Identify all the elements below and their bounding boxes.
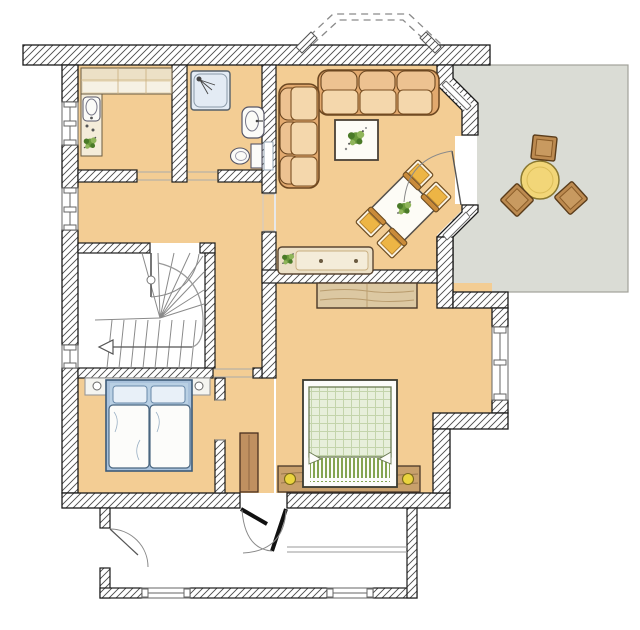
terrace-chair <box>531 135 557 161</box>
pillow-left <box>113 386 147 403</box>
wall-stair-east <box>205 253 215 368</box>
wall-top <box>23 45 490 65</box>
window-left-stairs <box>62 345 78 368</box>
wall-living-west-2 <box>262 232 276 378</box>
pillow-right <box>151 386 185 403</box>
shelf-knob-left <box>93 382 101 390</box>
apartment-door-knob <box>147 276 155 284</box>
bedside-lamp-left <box>285 474 296 485</box>
vestibule-window-left <box>142 588 190 598</box>
wall-stair-north-1 <box>78 243 150 253</box>
wall-kitchen-south <box>78 170 137 182</box>
dormer-dashed-outer <box>301 14 441 44</box>
window-left-hall <box>62 188 78 230</box>
window-left-kitchen <box>62 102 78 145</box>
floor-plan-page <box>0 0 640 630</box>
wall-east-step <box>433 413 508 429</box>
dormer-dashed-inner <box>313 20 429 44</box>
sideboard-with-plant <box>278 247 373 274</box>
bed-master <box>303 380 397 487</box>
bedside-lamp-right <box>403 474 414 485</box>
bed-guest <box>106 380 192 471</box>
kitchen-counter-front <box>83 82 170 92</box>
wall-bedroom-guest-north <box>78 368 213 378</box>
wall-east-1 <box>492 308 508 327</box>
wall-kitchen-bath <box>172 65 187 182</box>
bed-master-blanket <box>309 387 391 457</box>
floor-vestibule <box>100 508 417 598</box>
wall-left-4 <box>62 368 78 493</box>
wall-east-2 <box>492 400 508 413</box>
duvet-right <box>150 405 190 468</box>
shower <box>191 71 230 110</box>
wall-terrace-south <box>453 292 508 308</box>
wall-east-living <box>437 237 453 308</box>
vestibule-window-right <box>327 588 373 598</box>
tall-cupboard <box>240 433 258 492</box>
wall-stair-north-2 <box>200 243 215 253</box>
wall-left-1 <box>62 65 78 102</box>
floor-plan-drawing <box>0 0 640 630</box>
washbasin <box>242 107 264 138</box>
coffee-table-with-plant <box>335 120 378 160</box>
wardrobe <box>317 283 417 308</box>
wall-left-3 <box>62 230 78 345</box>
window-east-bedroom <box>492 327 508 400</box>
shelf-knob-right <box>195 382 203 390</box>
wall-left-2 <box>62 145 78 188</box>
wall-stub <box>253 368 262 378</box>
wall-bedrooms-divider-2 <box>215 440 225 493</box>
terrace <box>453 65 628 292</box>
wall-bottom-right <box>287 493 450 508</box>
wall-bedrooms-divider-1 <box>215 378 225 400</box>
wall-bottom-left <box>62 493 240 508</box>
bed-master-fringe <box>310 458 390 482</box>
kitchen-sink <box>83 97 100 121</box>
wall-east-3 <box>433 429 450 493</box>
radiator <box>264 142 273 170</box>
duvet-left <box>109 405 149 468</box>
